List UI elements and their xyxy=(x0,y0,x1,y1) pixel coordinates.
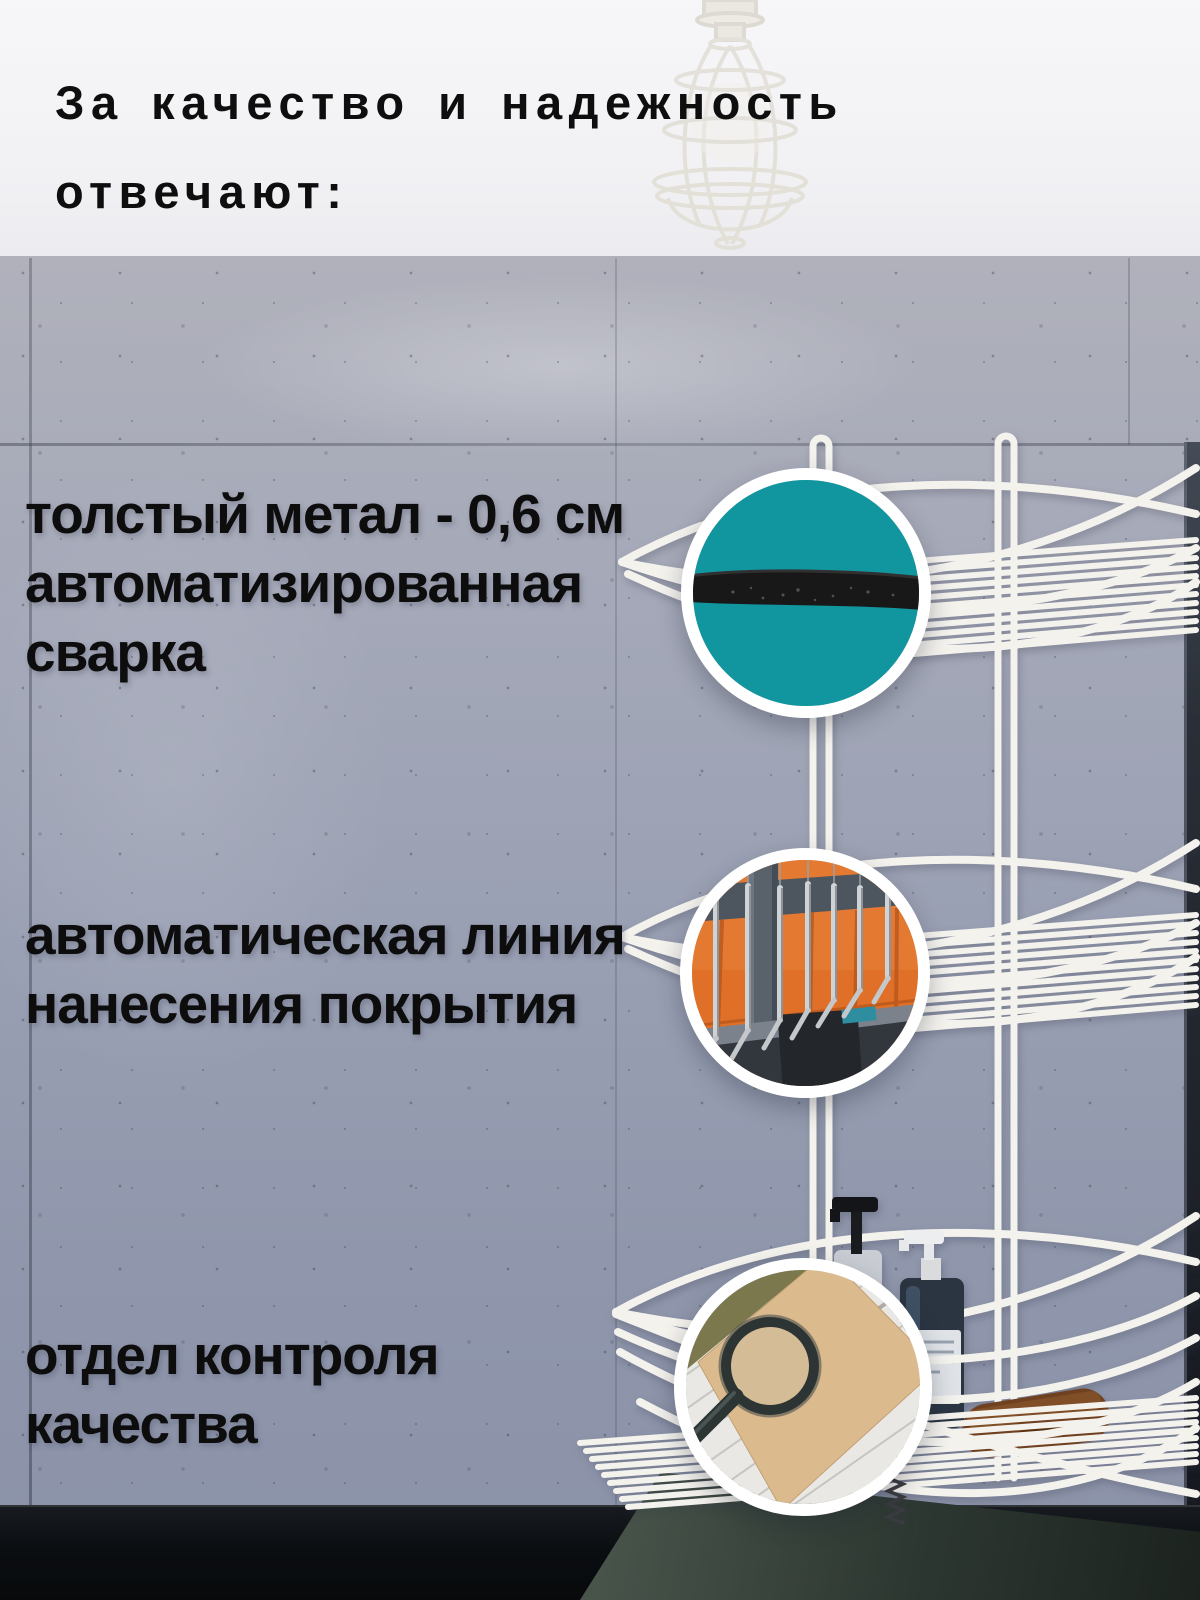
feature-3-line-2: качества xyxy=(25,1390,439,1459)
feature-2-line-1: автоматическая линия xyxy=(25,901,625,970)
callout-metal-thickness xyxy=(681,468,931,718)
title-line-2: отвечают: xyxy=(55,147,844,236)
page-title: За качество и надежность отвечают: xyxy=(55,58,844,236)
infographic-page: За качество и надежность отвечают: xyxy=(0,0,1200,1600)
coating-line-photo xyxy=(692,860,918,1086)
callout-quality-control xyxy=(674,1258,932,1516)
feature-text-quality: отдел контроля качества xyxy=(25,1321,439,1459)
title-line-1: За качество и надежность xyxy=(55,58,844,147)
feature-1-line-2: автоматизированная xyxy=(25,549,624,618)
title-banner: За качество и надежность отвечают: xyxy=(0,0,1200,256)
feature-text-metal: толстый метал - 0,6 см автоматизированна… xyxy=(25,480,624,687)
feature-2-line-2: нанесения покрытия xyxy=(25,970,625,1039)
quality-check-photo xyxy=(686,1270,920,1504)
wire-rod-closeup xyxy=(693,480,919,706)
feature-1-line-1: толстый метал - 0,6 см xyxy=(25,480,624,549)
feature-1-line-3: сварка xyxy=(25,618,624,687)
feature-text-coating: автоматическая линия нанесения покрытия xyxy=(25,901,625,1039)
feature-3-line-1: отдел контроля xyxy=(25,1321,439,1390)
callout-coating-line xyxy=(680,848,930,1098)
